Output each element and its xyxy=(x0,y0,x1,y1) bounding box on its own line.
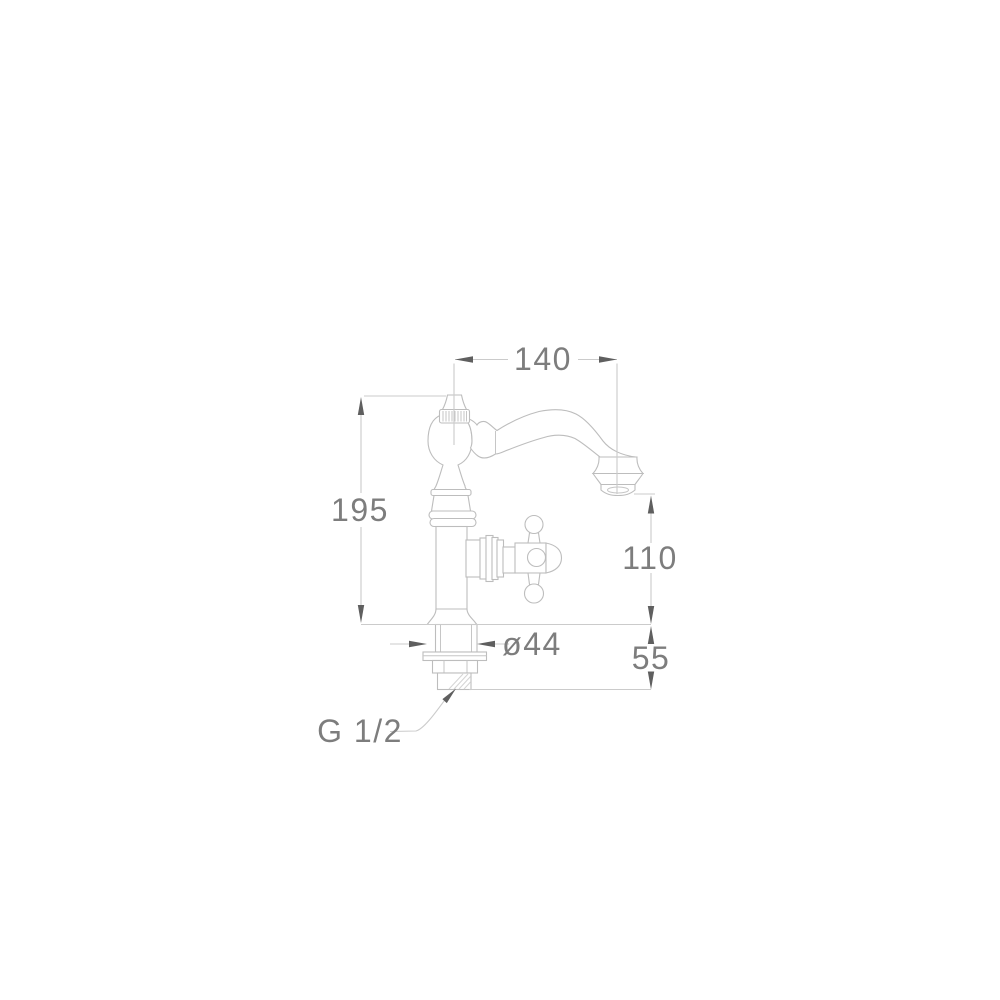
callout-inlet-thread: G 1/2 xyxy=(317,689,456,750)
dim-110-label: 110 xyxy=(622,540,678,576)
dim-195-label: 195 xyxy=(331,492,389,528)
leader-arrow-icon xyxy=(442,689,456,704)
handle-assembly xyxy=(466,516,562,604)
handle-front-spoke-end xyxy=(528,549,546,567)
base-assembly xyxy=(423,609,487,690)
faucet-technical-drawing: 140 195 110 55 ø44 G 1/2 xyxy=(0,0,1000,1000)
handle-neck xyxy=(503,547,516,573)
base-shank-upper xyxy=(436,625,478,653)
handle-bottom-ball xyxy=(525,584,544,603)
handle-top-spoke xyxy=(528,533,540,543)
faucet-body xyxy=(428,415,472,490)
dim-44-label: ø44 xyxy=(502,626,562,662)
drawing-canvas: 140 195 110 55 ø44 G 1/2 xyxy=(0,0,1000,1000)
spout-outlet xyxy=(593,457,643,496)
handle-top-ball xyxy=(525,516,543,534)
arrow-right-icon xyxy=(409,641,427,647)
arrow-left-icon xyxy=(477,641,495,647)
arrow-up-icon xyxy=(358,397,364,415)
arrow-right-icon xyxy=(599,356,617,362)
dimension-under-deck: 55 xyxy=(469,626,670,690)
aerator-cap xyxy=(601,485,635,496)
arrow-left-icon xyxy=(455,356,473,362)
thread-label: G 1/2 xyxy=(317,713,403,749)
dimension-outlet-height: 110 xyxy=(622,494,678,624)
dim-140-label: 140 xyxy=(514,341,572,377)
dim-55-label: 55 xyxy=(632,640,671,676)
handle-dome-cap xyxy=(546,543,562,573)
faucet-column xyxy=(436,527,467,611)
faucet-spout xyxy=(461,410,636,458)
base-flare xyxy=(427,609,477,625)
arrow-down-icon xyxy=(358,605,364,623)
column-collar xyxy=(429,490,476,527)
arrow-down-icon xyxy=(648,606,654,624)
lock-nut xyxy=(433,661,478,674)
handle-bonnet xyxy=(480,536,504,582)
handle-bottom-spoke xyxy=(528,573,540,585)
arrow-up-icon xyxy=(648,496,654,514)
